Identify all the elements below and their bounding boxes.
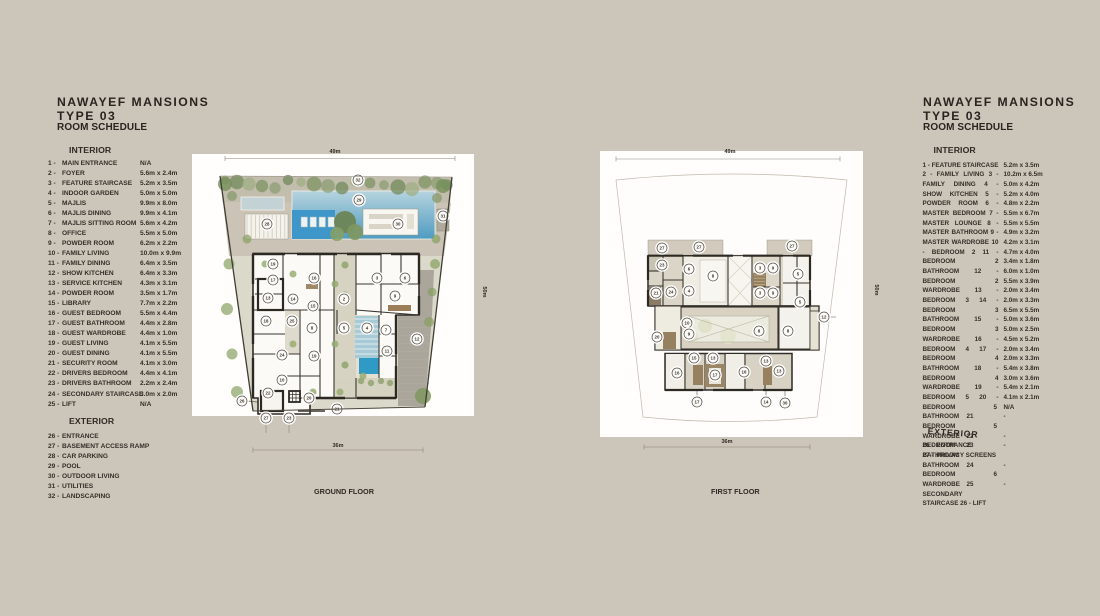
- svg-text:50m: 50m: [481, 286, 487, 297]
- svg-text:10: 10: [685, 321, 690, 326]
- svg-text:36m: 36m: [332, 443, 343, 449]
- svg-text:26: 26: [240, 399, 245, 404]
- svg-text:20: 20: [655, 335, 660, 340]
- svg-text:13: 13: [777, 369, 782, 374]
- svg-text:20: 20: [307, 396, 312, 401]
- svg-text:31: 31: [441, 214, 446, 219]
- svg-text:10: 10: [280, 378, 285, 383]
- svg-text:27: 27: [697, 245, 702, 250]
- svg-text:21: 21: [654, 291, 659, 296]
- svg-text:30: 30: [783, 401, 788, 406]
- svg-text:14: 14: [291, 297, 296, 302]
- svg-text:23: 23: [660, 263, 665, 268]
- svg-text:22: 22: [266, 391, 271, 396]
- svg-text:27: 27: [790, 244, 795, 249]
- svg-text:18: 18: [264, 319, 269, 324]
- svg-text:29: 29: [357, 198, 362, 203]
- svg-text:15: 15: [692, 356, 697, 361]
- svg-text:27: 27: [264, 416, 269, 421]
- svg-text:16: 16: [675, 371, 680, 376]
- svg-text:12: 12: [415, 337, 420, 342]
- svg-text:24: 24: [280, 353, 285, 358]
- svg-text:14: 14: [764, 400, 769, 405]
- svg-text:24: 24: [669, 290, 674, 295]
- svg-text:11: 11: [385, 349, 390, 354]
- svg-text:13: 13: [711, 356, 716, 361]
- svg-text:17: 17: [271, 278, 276, 283]
- svg-text:50m: 50m: [873, 284, 879, 295]
- svg-text:19: 19: [271, 262, 276, 267]
- svg-text:23: 23: [287, 416, 292, 421]
- svg-text:13: 13: [266, 296, 271, 301]
- svg-text:17: 17: [695, 400, 700, 405]
- svg-text:13: 13: [764, 359, 769, 364]
- svg-text:27: 27: [660, 246, 665, 251]
- svg-text:16: 16: [312, 276, 317, 281]
- svg-text:15: 15: [311, 304, 316, 309]
- svg-text:36m: 36m: [721, 439, 732, 445]
- svg-text:19: 19: [312, 354, 317, 359]
- svg-text:30: 30: [396, 222, 401, 227]
- svg-text:16: 16: [742, 370, 747, 375]
- svg-text:49m: 49m: [329, 149, 340, 155]
- svg-text:25: 25: [290, 319, 295, 324]
- svg-text:49m: 49m: [724, 149, 735, 155]
- svg-text:28: 28: [265, 222, 270, 227]
- svg-text:17: 17: [713, 373, 718, 378]
- svg-text:32: 32: [356, 178, 361, 183]
- svg-text:12: 12: [822, 315, 827, 320]
